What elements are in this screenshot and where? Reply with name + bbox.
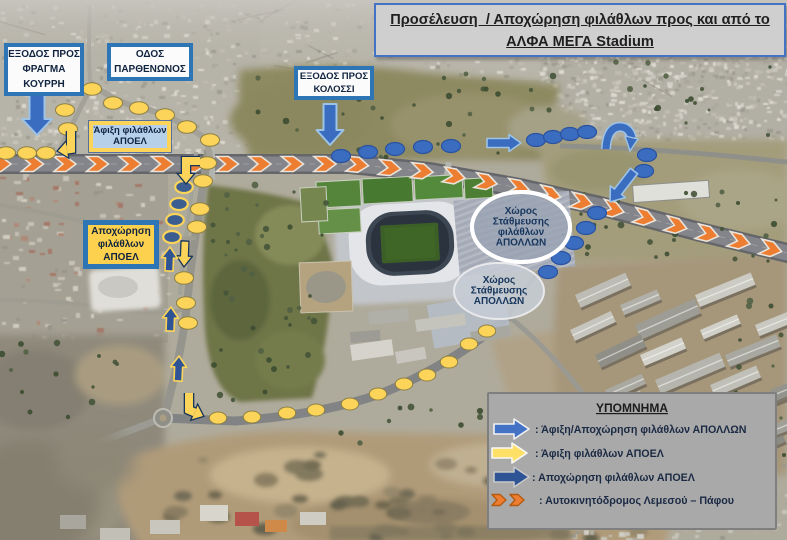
svg-text:ΑΠΟΛΛΩΝ: ΑΠΟΛΛΩΝ [496,238,547,249]
svg-text:φιλάθλων: φιλάθλων [498,227,545,238]
svg-text:ΥΠΟΜΝΗΜΑ: ΥΠΟΜΝΗΜΑ [596,401,668,415]
svg-text:Στάθμευσης: Στάθμευσης [493,217,549,228]
svg-text:: Αποχώρηση φιλάθλων ΑΠΟΕΛ: : Αποχώρηση φιλάθλων ΑΠΟΕΛ [532,472,696,484]
svg-text:: Άφιξη/Αποχώρηση φιλάθλων Α: : Άφιξη/Αποχώρηση φιλάθλων ΑΠΟΛΛΩΝ [535,424,747,436]
svg-text:: Αυτοκινητόδρομος Λεμεσού –: : Αυτοκινητόδρομος Λεμεσού – Πάφου [539,495,734,507]
svg-text:Χώρος: Χώρος [483,275,515,286]
svg-text:: Άφιξη φιλάθλων ΑΠΟΕΛ: : Άφιξη φιλάθλων ΑΠΟΕΛ [535,448,665,460]
svg-text:ΑΠΟΛΛΩΝ: ΑΠΟΛΛΩΝ [474,296,525,307]
svg-text:Χώρος: Χώρος [505,206,537,217]
svg-text:Στάθμευσης: Στάθμευσης [471,286,527,297]
